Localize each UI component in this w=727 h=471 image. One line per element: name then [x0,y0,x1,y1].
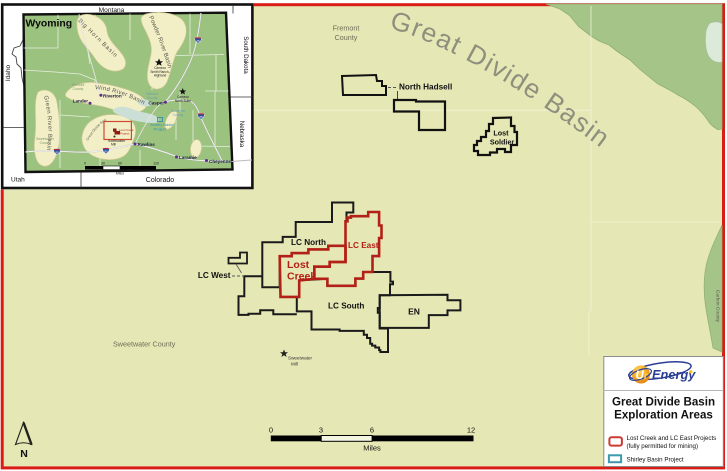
svg-text:Lost: Lost [493,129,509,138]
svg-text:N: N [20,448,28,460]
svg-text:Miles: Miles [116,172,125,176]
svg-text:Shirley Basin Project: Shirley Basin Project [627,456,684,463]
svg-text:25: 25 [199,115,203,119]
svg-text:Idaho: Idaho [5,64,12,81]
svg-text:Project: Project [120,132,130,136]
svg-text:120: 120 [153,162,159,166]
svg-text:LC South: LC South [328,302,364,311]
svg-text:6: 6 [370,426,374,435]
svg-text:LC North: LC North [291,238,326,247]
svg-text:Great Divide Basin: Great Divide Basin [612,396,715,409]
svg-text:North Hadsell: North Hadsell [399,83,452,92]
svg-text:30: 30 [101,162,105,166]
svg-text:80: 80 [104,149,108,153]
svg-text:LC West: LC West [198,271,231,280]
svg-text:0: 0 [269,426,273,435]
svg-text:Sweetwater: Sweetwater [288,356,312,361]
svg-text:County: County [40,141,51,145]
svg-text:Energy: Energy [652,367,696,382]
svg-text:60: 60 [118,162,122,166]
svg-text:South Dakota: South Dakota [242,36,249,74]
svg-text:Lost: Lost [287,259,310,271]
svg-text:0: 0 [84,162,86,166]
svg-text:Miles: Miles [363,444,381,453]
svg-text:Carbon County: Carbon County [715,290,721,323]
svg-text:Exploration Areas: Exploration Areas [614,409,713,422]
svg-text:Fremont: Fremont [333,24,360,33]
svg-text:Lost Creek and LC East Project: Lost Creek and LC East Projects [627,435,717,442]
svg-text:Highland: Highland [154,74,167,78]
svg-text:Wyoming: Wyoming [26,19,73,30]
svg-text:12: 12 [467,426,475,435]
svg-text:Lander: Lander [73,99,89,104]
svg-text:Colorado: Colorado [146,177,175,184]
svg-text:Laramie: Laramie [179,155,197,160]
svg-text:Utah: Utah [11,177,25,184]
svg-text:County: County [335,33,358,42]
svg-text:Mill: Mill [111,143,116,147]
svg-text:Soldier: Soldier [490,138,515,147]
svg-text:North Butte: North Butte [175,99,191,103]
svg-text:County: County [73,87,84,91]
svg-text:(fully permitted for mining): (fully permitted for mining) [627,443,699,450]
svg-text:EN: EN [408,307,420,317]
svg-text:Mill: Mill [291,362,298,367]
svg-text:Cheyenne: Cheyenne [209,159,231,164]
svg-text:Riverton: Riverton [103,94,122,99]
svg-text:Sweetwater County: Sweetwater County [113,340,176,349]
svg-text:LC East: LC East [348,241,379,250]
svg-text:Rawlins: Rawlins [138,142,156,147]
svg-text:Nebraska: Nebraska [238,121,245,148]
svg-text:Project: Project [154,127,167,132]
svg-text:25: 25 [196,39,200,43]
svg-text:Casper: Casper [148,100,164,105]
svg-text:Creek: Creek [287,271,316,283]
svg-text:County: County [173,113,184,117]
svg-text:3: 3 [319,426,323,435]
svg-text:80: 80 [55,150,59,154]
